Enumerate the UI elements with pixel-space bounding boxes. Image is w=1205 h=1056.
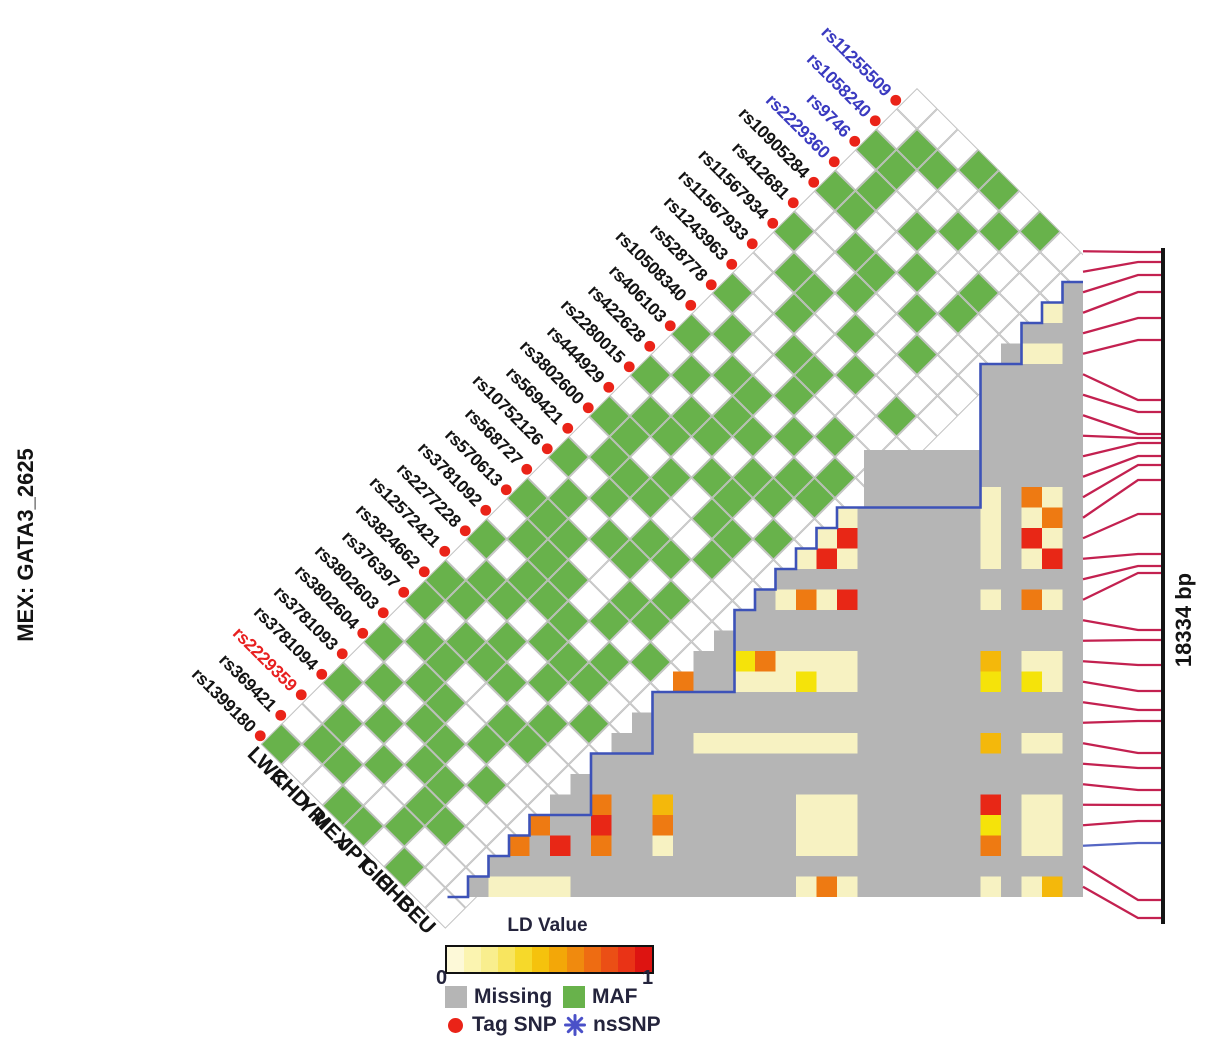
position-map-line: [1083, 292, 1161, 313]
position-map-line: [1083, 573, 1161, 600]
legend-tagsnp-entry: Tag SNP: [448, 1013, 557, 1037]
maf-swatch-icon: [563, 986, 585, 1008]
nssnp-asterisk-icon: [563, 1013, 587, 1037]
legend-maf-entry: MAF: [563, 985, 638, 1009]
position-map-line: [1083, 262, 1161, 272]
position-map-line: [1083, 702, 1161, 710]
position-map-line: [1083, 436, 1161, 438]
position-map-line: [1083, 764, 1161, 768]
colorbar-segment: [549, 947, 566, 972]
position-map-line: [1083, 480, 1161, 518]
position-map-line: [1083, 395, 1161, 412]
colorbar-segment: [447, 947, 464, 972]
position-map-line: [1083, 821, 1161, 825]
position-map-line: [1083, 743, 1161, 753]
position-map-line: [1083, 554, 1161, 559]
position-map-line: [1083, 640, 1161, 641]
maf-band-clip: [0, 0, 1205, 1056]
legend-ld-title: LD Value: [445, 915, 650, 937]
legend-missing-entry: Missing: [445, 985, 552, 1009]
position-map-line: [1083, 866, 1161, 900]
position-map-line: [1083, 415, 1161, 434]
colorbar-segment: [464, 947, 481, 972]
tag-snp-label: Tag SNP: [472, 1013, 557, 1037]
position-map-line: [1083, 620, 1161, 630]
missing-swatch-icon: [445, 986, 467, 1008]
region-size-text: 18334 bp: [1171, 573, 1197, 667]
ld-plot-figure: MEX: GATA3_2625 rs11255509rs1058240rs974…: [0, 0, 1205, 1056]
colorbar-segment: [584, 947, 601, 972]
colorbar-segment: [532, 947, 549, 972]
region-size-label: 18334 bp: [1184, 620, 1205, 646]
colorbar-segment: [601, 947, 618, 972]
colorbar-max-label: 1: [642, 967, 653, 990]
position-map-line: [1083, 340, 1161, 354]
colorbar-segment: [618, 947, 635, 972]
missing-label: Missing: [474, 985, 552, 1009]
position-map-line: [1083, 275, 1161, 292]
position-map-line: [1083, 514, 1161, 538]
position-map-line: [1083, 374, 1161, 400]
ld-colorbar: [445, 945, 654, 974]
position-map-line: [1083, 465, 1161, 497]
position-map-line: [1083, 721, 1161, 723]
position-map-line: [1083, 887, 1161, 918]
position-map-line: [1083, 682, 1161, 691]
maf-population-band: [261, 88, 1102, 929]
position-map-line: [1083, 318, 1161, 333]
position-map-line: [1083, 456, 1161, 477]
nssnp-label: nsSNP: [593, 1013, 661, 1037]
position-map-line: [1083, 566, 1161, 579]
colorbar-segment: [515, 947, 532, 972]
position-map-line: [1083, 661, 1161, 665]
colorbar-segment: [481, 947, 498, 972]
position-map-line: [1083, 443, 1161, 456]
colorbar-segment: [498, 947, 515, 972]
genomic-scale-bar: [1161, 248, 1165, 924]
tag-snp-dot-icon: [448, 1018, 463, 1033]
maf-label: MAF: [592, 985, 638, 1009]
legend-nssnp-entry: nsSNP: [563, 1013, 661, 1037]
position-map-line: [1083, 251, 1161, 252]
position-map-line: [1083, 843, 1161, 846]
colorbar-segment: [567, 947, 584, 972]
position-map-line: [1083, 784, 1161, 790]
